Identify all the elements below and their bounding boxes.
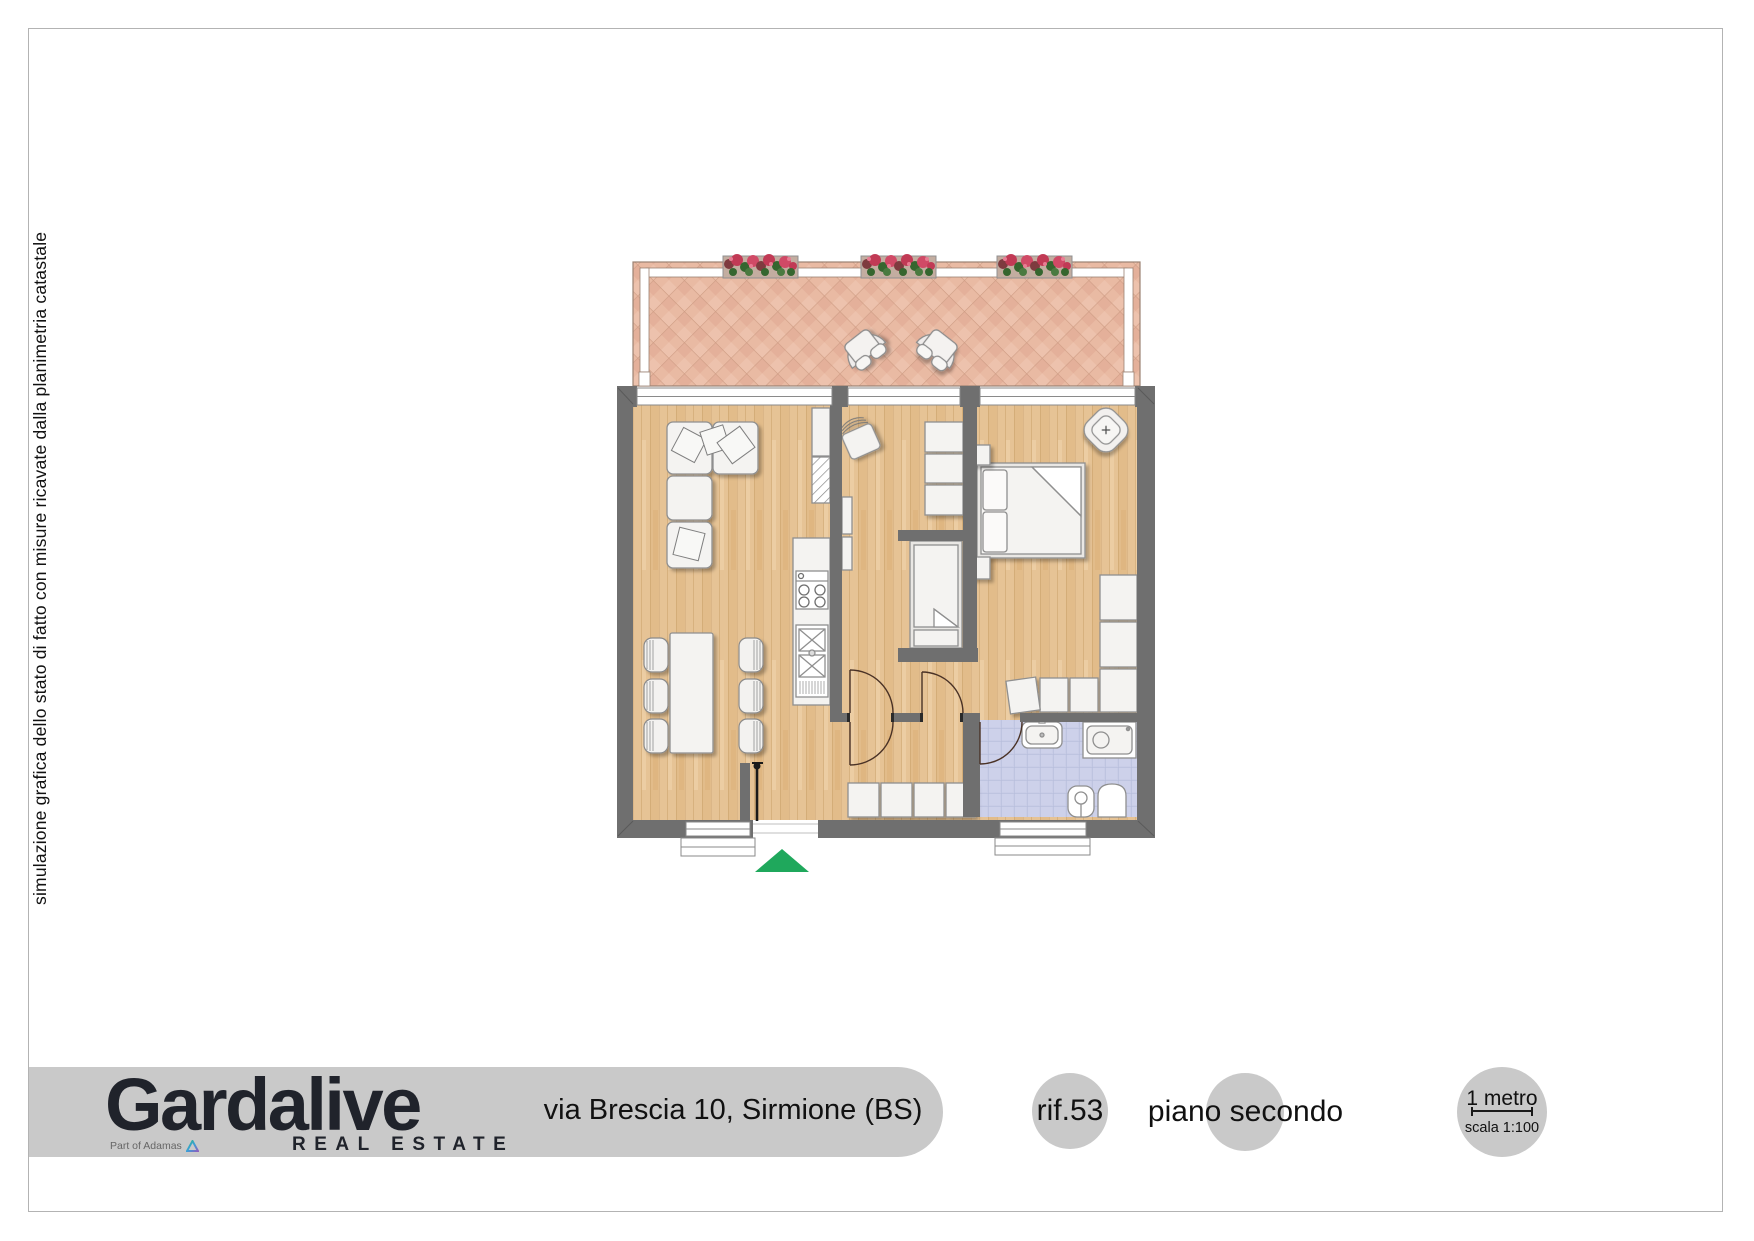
single-bed (910, 541, 962, 648)
wall-right (1137, 386, 1155, 838)
reference-badge: rif.53 (1032, 1073, 1108, 1149)
wall-bed-niche-top (898, 530, 963, 541)
wall-entry-stub (740, 763, 750, 820)
wall-living-divider (830, 405, 842, 714)
scale-ratio-label: scala 1:100 (1465, 1121, 1539, 1136)
double-bed (977, 463, 1085, 558)
scale-bar (1471, 1110, 1533, 1120)
wall-left (617, 386, 633, 838)
terrace-railing-left (640, 268, 649, 372)
bathroom-sink (1022, 718, 1062, 748)
brand-tagline: REAL ESTATE (292, 1134, 514, 1156)
wall-bed-niche-bottom (898, 648, 978, 662)
brand-partner: Part of Adamas (110, 1140, 199, 1152)
dining-set (644, 633, 763, 753)
railing-post-right (1123, 372, 1134, 386)
property-address: via Brescia 10, Sirmione (BS) (523, 1094, 943, 1127)
floor-label: piano secondo (1143, 1095, 1348, 1129)
terrace (633, 254, 1140, 386)
terrace-railing-right (1124, 268, 1133, 372)
flower-box-1 (723, 254, 798, 278)
adamas-triangle-icon (186, 1140, 199, 1152)
washing-machine (1083, 722, 1136, 758)
flower-box-2 (861, 254, 936, 278)
entrance-arrow-icon (755, 849, 809, 872)
terrace-floor (633, 262, 1140, 386)
hallway-closets (848, 783, 975, 817)
railing-post-left (639, 372, 650, 386)
wall-bedroom-divider (963, 405, 977, 662)
floor-plan (0, 0, 1754, 1241)
stove (796, 571, 828, 609)
dining-table (670, 633, 713, 753)
scale-badge: 1 metro scala 1:100 (1457, 1067, 1547, 1157)
wall-bathroom-left (963, 713, 980, 817)
toilet (1098, 784, 1126, 817)
bidet (1068, 786, 1094, 817)
scale-length-label: 1 metro (1466, 1088, 1537, 1109)
flower-box-3 (997, 254, 1072, 278)
entrance-opening (753, 820, 818, 838)
